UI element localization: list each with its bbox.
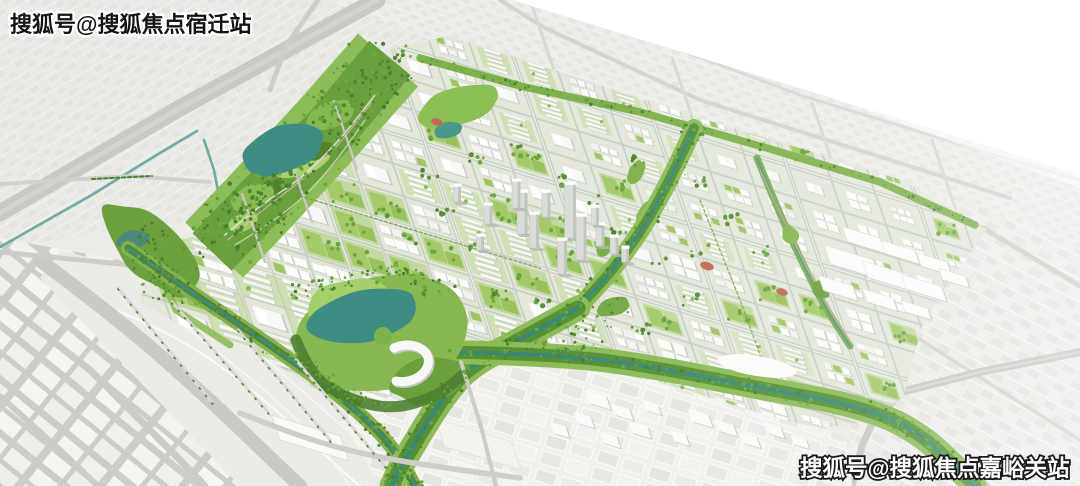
svg-text:搜狐号@搜狐焦点宿迁站: 搜狐号@搜狐焦点宿迁站 [10,12,251,37]
svg-text:搜狐号@搜狐焦点嘉峪关站: 搜狐号@搜狐焦点嘉峪关站 [800,455,1070,481]
